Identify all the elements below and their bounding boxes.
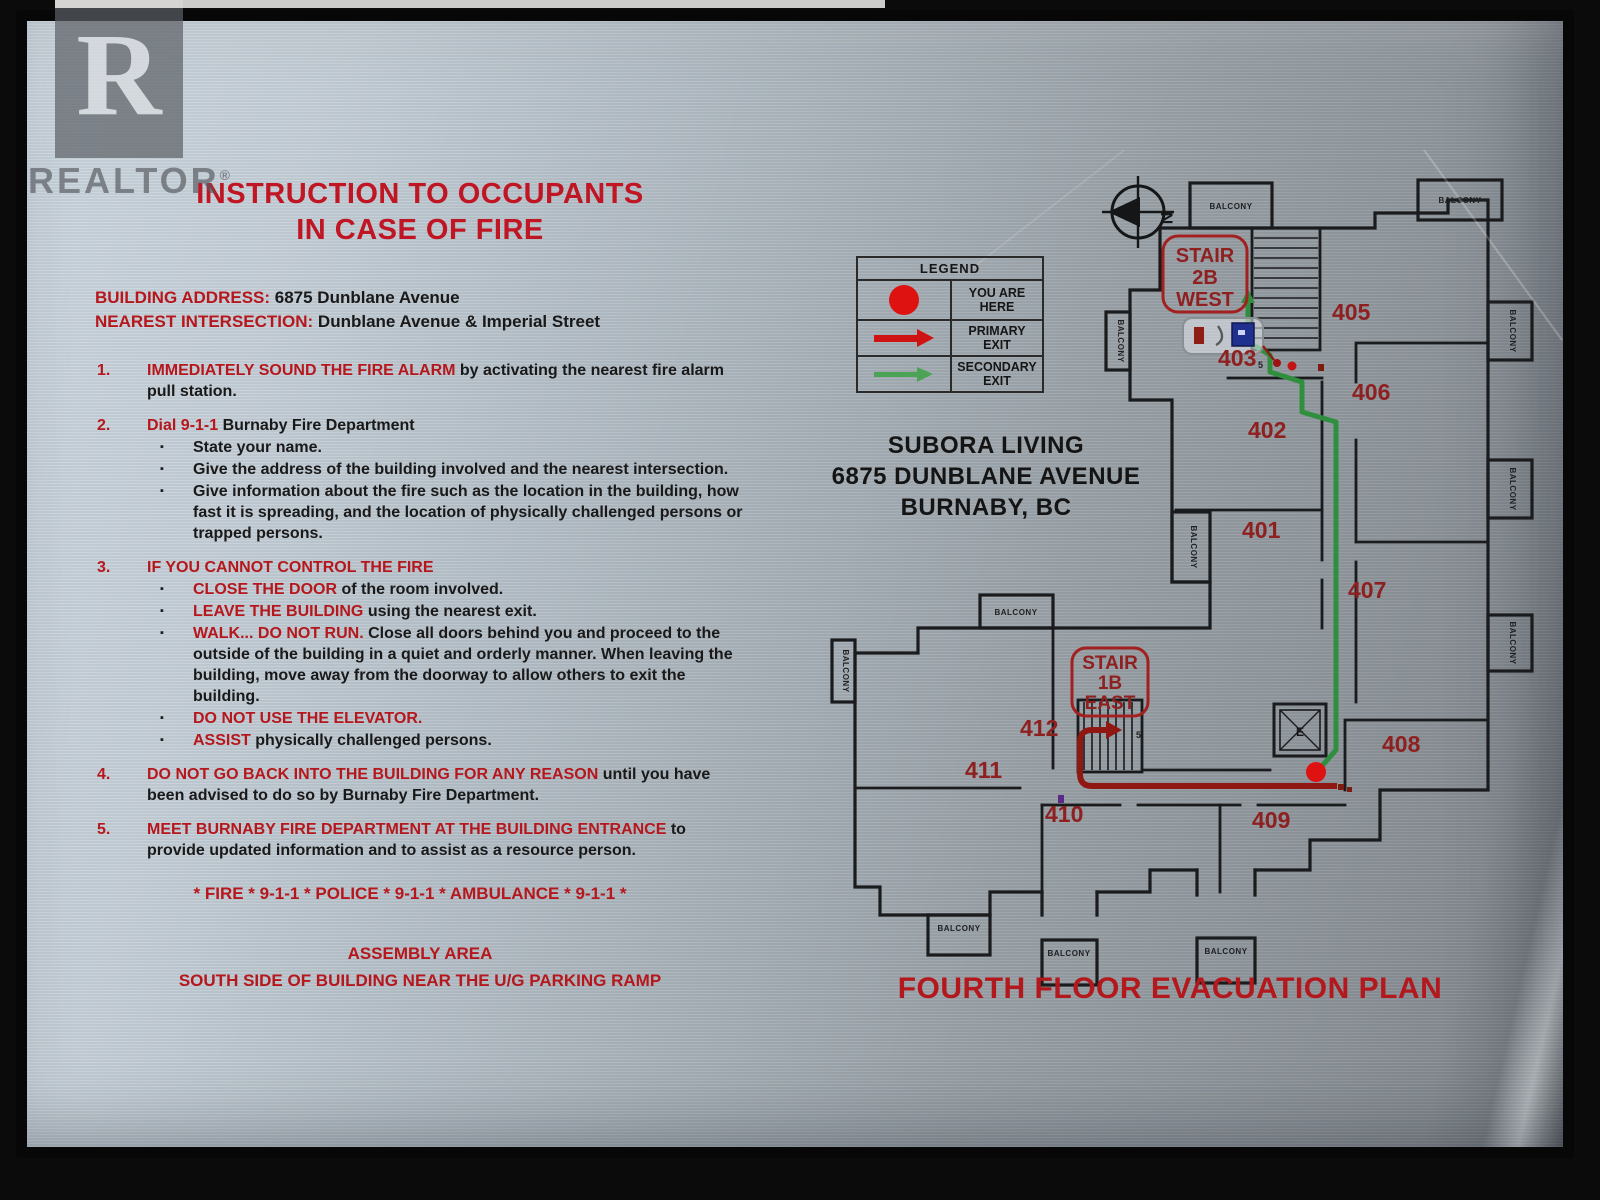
svg-text:BALCONY: BALCONY bbox=[1209, 202, 1252, 211]
building-street-address: 6875 DUNBLANE AVENUE bbox=[818, 461, 1154, 492]
bullet: WALK... DO NOT RUN. Close all doors behi… bbox=[147, 623, 745, 707]
building-address-block: BUILDING ADDRESS: 6875 Dunblane Avenue N… bbox=[95, 286, 755, 334]
realtor-logo-icon: R bbox=[55, 0, 183, 158]
primary-exit-arrow-icon bbox=[871, 328, 937, 348]
svg-text:EAST: EAST bbox=[1085, 693, 1136, 714]
legend-row-you-are-here: YOU AREHERE bbox=[858, 281, 1042, 321]
elevator-label: E bbox=[1296, 725, 1304, 739]
photo-of-plaque: R REALTOR® INSTRUCTION TO OCCUPANTS IN C… bbox=[0, 0, 1600, 1200]
stair-2b-treads bbox=[1254, 238, 1318, 338]
instruction-item-1: 1. IMMEDIATELY SOUND THE FIRE ALARM by a… bbox=[95, 360, 745, 402]
instruction-item-5: 5. MEET BURNABY FIRE DEPARTMENT AT THE B… bbox=[95, 819, 745, 861]
instructions-list: 1. IMMEDIATELY SOUND THE FIRE ALARM by a… bbox=[95, 360, 745, 874]
realtor-watermark-text: REALTOR® bbox=[28, 160, 233, 202]
bullet: Give the address of the building involve… bbox=[147, 459, 745, 480]
svg-text:BALCONY: BALCONY bbox=[1508, 309, 1517, 352]
north-compass-icon: N bbox=[1102, 176, 1176, 248]
assembly-area-block: ASSEMBLY AREA SOUTH SIDE OF BUILDING NEA… bbox=[95, 940, 745, 994]
bullet: CLOSE THE DOOR of the room involved. bbox=[147, 579, 745, 600]
svg-text:BALCONY: BALCONY bbox=[1116, 319, 1125, 362]
emergency-numbers-line: * FIRE * 9-1-1 * POLICE * 9-1-1 * AMBULA… bbox=[95, 884, 725, 904]
svg-text:BALCONY: BALCONY bbox=[994, 608, 1037, 617]
instruction-item-3: 3. IF YOU CANNOT CONTROL THE FIRE CLOSE … bbox=[95, 557, 745, 751]
device-marker bbox=[1318, 364, 1324, 371]
room-402: 402 bbox=[1248, 417, 1286, 443]
svg-text:BALCONY: BALCONY bbox=[1189, 525, 1198, 568]
instruction-2-bullets: State your name. Give the address of the… bbox=[147, 437, 745, 544]
legend-box: LEGEND YOU AREHERE PRIMARYEXIT SECONDARY… bbox=[856, 256, 1044, 393]
bullet: ASSIST physically challenged persons. bbox=[147, 730, 745, 751]
realtor-watermark: R REALTOR® bbox=[28, 0, 233, 202]
room-401: 401 bbox=[1242, 517, 1281, 543]
instruction-item-2: 2. Dial 9-1-1 Burnaby Fire Department St… bbox=[95, 415, 745, 544]
svg-text:BALCONY: BALCONY bbox=[1508, 621, 1517, 664]
alarm-dot bbox=[1288, 362, 1297, 371]
svg-text:BALCONY: BALCONY bbox=[1204, 947, 1247, 956]
room-409: 409 bbox=[1252, 807, 1290, 833]
room-406: 406 bbox=[1352, 379, 1390, 405]
title-line-2: IN CASE OF FIRE bbox=[90, 212, 750, 248]
svg-text:BALCONY: BALCONY bbox=[937, 924, 980, 933]
building-name-block: SUBORA LIVING 6875 DUNBLANE AVENUE BURNA… bbox=[818, 430, 1154, 523]
svg-text:STAIR: STAIR bbox=[1176, 245, 1235, 267]
assembly-area-text: SOUTH SIDE OF BUILDING NEAR THE U/G PARK… bbox=[95, 967, 745, 994]
building-name: SUBORA LIVING bbox=[818, 430, 1154, 461]
assembly-area-title: ASSEMBLY AREA bbox=[95, 940, 745, 967]
you-are-here-dot-icon bbox=[889, 285, 919, 315]
bullet: DO NOT USE THE ELEVATOR. bbox=[147, 708, 745, 729]
svg-text:2B: 2B bbox=[1192, 267, 1218, 289]
legend-row-secondary-exit: SECONDARYEXIT bbox=[858, 357, 1042, 391]
legend-row-primary-exit: PRIMARYEXIT bbox=[858, 321, 1042, 357]
svg-text:BALCONY: BALCONY bbox=[1508, 467, 1517, 510]
room-412: 412 bbox=[1020, 715, 1058, 741]
north-letter: N bbox=[1157, 212, 1176, 224]
secondary-exit-arrow-icon bbox=[871, 365, 937, 383]
building-address-line: BUILDING ADDRESS: 6875 Dunblane Avenue bbox=[95, 286, 755, 310]
room-411: 411 bbox=[965, 757, 1002, 783]
realtor-logo-letter: R bbox=[76, 16, 161, 134]
svg-text:STAIR: STAIR bbox=[1082, 653, 1138, 674]
room-405: 405 bbox=[1332, 299, 1371, 325]
room-408: 408 bbox=[1382, 731, 1421, 757]
building-city: BURNABY, BC bbox=[818, 492, 1154, 523]
instruction-3-bullets: CLOSE THE DOOR of the room involved. LEA… bbox=[147, 579, 745, 751]
alarm-dot bbox=[1273, 359, 1281, 367]
device-marker bbox=[1338, 784, 1344, 790]
svg-text:BALCONY: BALCONY bbox=[841, 649, 850, 692]
instruction-item-4: 4. DO NOT GO BACK INTO THE BUILDING FOR … bbox=[95, 764, 745, 806]
room-410: 410 bbox=[1045, 801, 1083, 827]
bullet: LEAVE THE BUILDING using the nearest exi… bbox=[147, 601, 745, 622]
stair-2b-label: STAIR 2B WEST bbox=[1163, 236, 1247, 312]
room-407: 407 bbox=[1348, 577, 1386, 603]
registered-mark: ® bbox=[220, 167, 233, 183]
door-mark: 5 bbox=[1258, 360, 1263, 370]
door-mark: 5 bbox=[1136, 730, 1141, 740]
svg-text:1B: 1B bbox=[1098, 673, 1122, 694]
room-403: 403 bbox=[1218, 345, 1256, 371]
you-are-here-marker bbox=[1306, 762, 1326, 782]
bullet: State your name. bbox=[147, 437, 745, 458]
legend-title: LEGEND bbox=[858, 258, 1042, 281]
plan-title: FOURTH FLOOR EVACUATION PLAN bbox=[870, 972, 1470, 1006]
svg-text:BALCONY: BALCONY bbox=[1047, 949, 1090, 958]
elevator-shaft: E bbox=[1274, 704, 1326, 756]
svg-text:WEST: WEST bbox=[1176, 289, 1234, 311]
bullet: Give information about the fire such as … bbox=[147, 481, 745, 544]
photo-edge-highlight bbox=[55, 0, 885, 8]
primary-exit-arrowhead bbox=[1106, 721, 1122, 739]
device-marker bbox=[1347, 787, 1352, 792]
fire-extinguisher-icon bbox=[1194, 327, 1204, 344]
nearest-intersection-line: NEAREST INTERSECTION: Dunblane Avenue & … bbox=[95, 310, 755, 334]
